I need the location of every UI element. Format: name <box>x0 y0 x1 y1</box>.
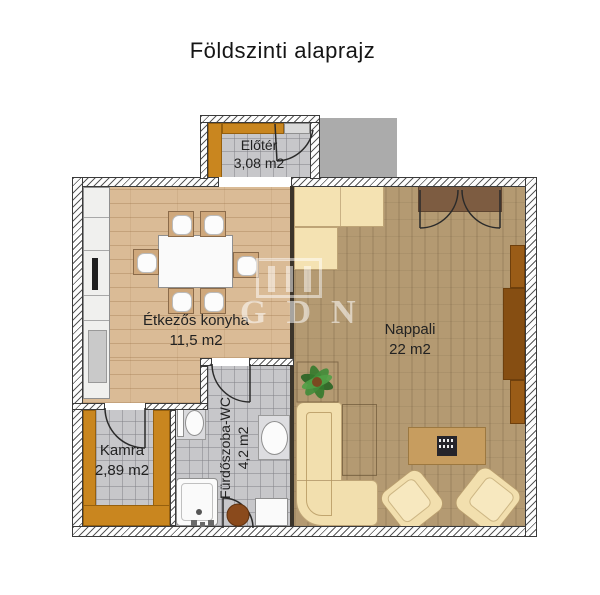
label-kitchen: Étkezős konyha 11,5 m2 <box>115 311 277 350</box>
dining-table <box>158 235 233 288</box>
pantry-door-opening <box>104 403 146 410</box>
bathroom-door-opening <box>211 358 250 366</box>
living-cabinet-top <box>294 186 384 227</box>
label-bathroom: Fürdőszoba-WC 4,2 m2 <box>216 373 254 523</box>
sofa-seat-line <box>306 412 332 516</box>
toilet-tank <box>177 409 184 437</box>
kitchen-sink <box>88 330 107 383</box>
cabinet-seam <box>340 187 341 226</box>
counter-seam-2 <box>84 250 109 251</box>
toilet-bowl <box>185 410 204 436</box>
label-living: Nappali 22 m2 <box>350 320 470 359</box>
kitchen-entry-opening <box>218 177 292 187</box>
chair <box>200 211 226 237</box>
wall-bottom <box>72 526 537 537</box>
label-pantry: Kamra 2,89 m2 <box>72 441 172 480</box>
wall-kitchen-living <box>290 186 294 526</box>
counter-seam-4 <box>84 320 109 321</box>
entry-wall-top <box>200 115 320 123</box>
page-title: Földszinti alaprajz <box>40 38 525 64</box>
wall-right <box>525 177 537 537</box>
pantry-shelf-bottom <box>83 505 170 526</box>
chair <box>133 249 159 275</box>
chair <box>168 211 194 237</box>
wardrobe-2 <box>503 288 525 380</box>
chair <box>233 252 259 278</box>
living-cabinet-side <box>294 227 338 270</box>
entry-cabinet-top <box>222 123 284 134</box>
counter-seam-1 <box>84 217 109 218</box>
washing-machine <box>255 498 288 526</box>
stereo <box>437 436 457 456</box>
washbasin <box>261 421 288 455</box>
shower-inner <box>181 483 213 521</box>
entry-steps <box>320 118 397 177</box>
wardrobe-1 <box>510 245 525 288</box>
counter-seam-3 <box>84 295 109 296</box>
door-mat <box>418 186 502 212</box>
oven-handle <box>92 258 98 290</box>
label-entry: Előtér 3,08 m2 <box>199 136 319 172</box>
entry-shelf <box>284 123 310 134</box>
floorplan-canvas: Földszinti alaprajz <box>0 0 600 595</box>
rug-outline <box>342 404 377 476</box>
wall-left <box>72 177 83 537</box>
wardrobe-3 <box>510 380 525 424</box>
wall-top <box>72 177 537 187</box>
